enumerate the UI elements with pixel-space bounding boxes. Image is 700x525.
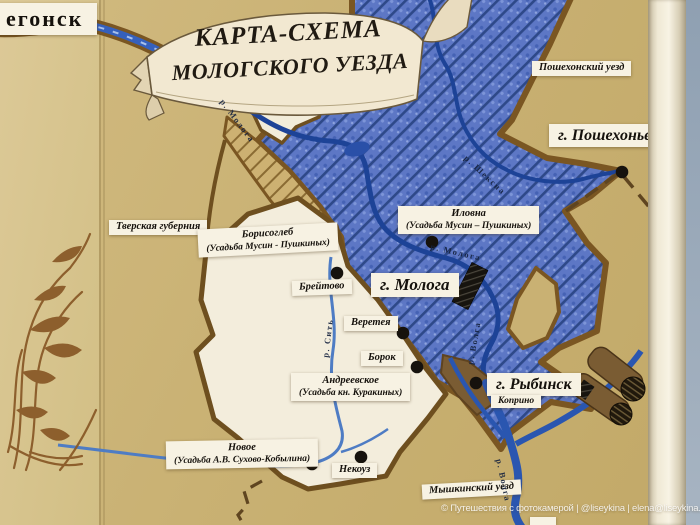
ribbon-left-curl — [146, 95, 164, 120]
label-borok: Борок — [361, 351, 403, 366]
dam-circle-lower — [610, 403, 632, 425]
dashed-border-south — [238, 481, 262, 525]
label-breytovo: Брейтово — [292, 279, 352, 296]
dot-poshekhonye — [616, 166, 629, 179]
dam-circle-upper — [621, 377, 645, 401]
door-trim — [648, 0, 686, 525]
estate-note: (Усадьба Мусин – Пушкиных) — [406, 221, 531, 232]
label-vereteya: Веретея — [344, 316, 398, 331]
label-vesyegonsk: егонск — [0, 3, 97, 35]
photo-watermark: © Путешествия с фотокамерой | @liseykina… — [441, 503, 700, 514]
dot-borok — [411, 361, 424, 374]
dot-vereteya — [397, 327, 410, 340]
label-koprino: Коприно — [491, 395, 541, 408]
estate-note: (Усадьба кн. Куракиных) — [299, 388, 402, 399]
settlement-name: Андреевское — [299, 375, 402, 388]
photo-wall-painted-map: КАРТА-СХЕМА МОЛОГСКОГО УЕЗДА егонск Поше… — [0, 0, 700, 525]
estate-note: (Усадьба А.В. Сухово-Кобылина) — [174, 453, 310, 467]
settlement-name: Иловна — [406, 208, 531, 221]
label-nekouz: Некоуз — [332, 463, 377, 478]
wall-right — [686, 0, 700, 525]
partial-label — [530, 517, 556, 525]
botanical-decoration — [8, 234, 96, 470]
label-ilovna: Иловна (Усадьба Мусин – Пушкиных) — [398, 206, 539, 234]
dot-breytovo — [331, 267, 344, 280]
dot-nekouz — [355, 451, 368, 464]
painted-map-artwork — [0, 0, 700, 525]
label-mologa: г. Молога — [371, 273, 459, 297]
label-rybinsk: г. Рыбинск — [487, 373, 581, 396]
label-novoe: Новое (Усадьба А.В. Сухово-Кобылина) — [166, 439, 318, 470]
label-poshekhonye: г. Пошехонье — [549, 124, 660, 147]
label-andreevskoe: Андреевское (Усадьба кн. Куракиных) — [291, 373, 410, 401]
label-tverskaya-gubernia: Тверская губерния — [109, 220, 207, 235]
dot-rybinsk — [470, 377, 483, 390]
label-poshekhonsky-uezd: Пошехонский уезд — [532, 61, 631, 76]
